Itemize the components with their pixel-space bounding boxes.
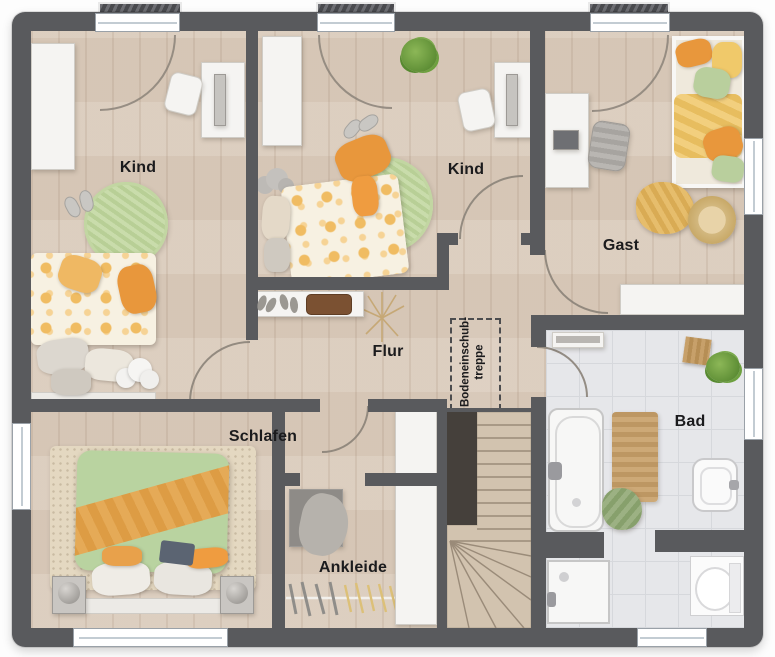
ankleide-closet-column: [395, 410, 437, 625]
bad-sink: [692, 458, 738, 512]
schlafen-bed: [74, 450, 232, 620]
wall-schlafen-north-west: [31, 399, 320, 412]
bad-shower: [547, 560, 610, 624]
bad-bathtub: [548, 408, 604, 532]
clothes-rail: [286, 582, 400, 616]
kind1-cloud-table: [116, 356, 160, 396]
door-arc-kind2: [460, 176, 523, 239]
room-label-gast: Gast: [603, 237, 639, 255]
window-swing-kind1: [100, 35, 175, 110]
wall-toilet-stub: [655, 530, 744, 552]
window-kind1: [95, 13, 180, 32]
wall-ankleide-north-east: [365, 473, 437, 486]
wall-gast-bad: [531, 315, 744, 330]
window-bad-bottom: [637, 628, 707, 647]
flur-tray-basket: [306, 294, 352, 315]
kind2-plant: [401, 38, 437, 72]
schlafen-throw-orange: [74, 459, 229, 559]
door-arc-bad: [537, 347, 587, 397]
window-schlafen-left: [12, 423, 31, 510]
room-label-flur: Flur: [372, 343, 403, 361]
window-schlafen-bottom: [73, 628, 228, 647]
gast-bed: [672, 36, 746, 188]
bad-tub-drain: [572, 498, 581, 507]
gast-sideboard: [620, 284, 746, 315]
window-kind2: [317, 13, 395, 32]
bad-shower-drain: [559, 572, 569, 582]
wall-bad-west-stub: [531, 330, 546, 347]
kind2-bed: [258, 132, 406, 282]
attic-hatch-label: Bodeneinschub- treppe: [459, 317, 488, 407]
schlafen-cushion-orange-left: [102, 546, 142, 566]
kind1-pillow-small: [51, 369, 91, 395]
room-label-schlafen: Schlafen: [229, 428, 297, 446]
window-bad-right: [744, 368, 763, 440]
window-swing-gast: [592, 35, 668, 111]
wall-kind2-south: [246, 277, 447, 290]
kind2-pillow-beige: [260, 195, 291, 241]
kind2-duvet: [280, 173, 409, 287]
staircase: [447, 412, 531, 628]
room-label-bad: Bad: [675, 413, 706, 431]
window-gast-top: [590, 13, 670, 32]
wall-kind2-doorstub-west: [437, 233, 458, 245]
attic-label-line2: treppe: [474, 344, 486, 379]
bad-plant: [706, 352, 740, 382]
bad-sink-tap: [729, 480, 739, 490]
bad-toilet-base: [690, 556, 744, 616]
bad-toilet-cistern: [729, 563, 741, 613]
kind2-pillow-grey: [264, 238, 290, 272]
schlafen-lamp-right: [226, 582, 248, 604]
door-arc-kind1: [190, 342, 250, 402]
kind1-wardrobe: [31, 43, 75, 170]
kind2-headboard-cushion: [350, 175, 380, 217]
kind2-wardrobe: [262, 36, 302, 146]
bad-sink-basin: [700, 467, 732, 505]
window-swing-kind2: [319, 35, 392, 108]
schlafen-footboard: [78, 598, 228, 614]
dried-grass-plant: [360, 292, 404, 342]
floor-plan: Bodeneinschub- treppe: [0, 0, 775, 657]
gast-throw-blanket: [636, 182, 694, 234]
bad-shower-faucet: [547, 592, 556, 607]
wall-kind1-kind2: [246, 31, 258, 340]
bad-towel: [556, 336, 600, 343]
wall-bad-west: [531, 397, 546, 628]
room-label-kind2: Kind: [448, 161, 484, 179]
stair-opening-edge: [447, 408, 531, 412]
wall-stair-west: [437, 399, 447, 628]
door-arc-gast: [545, 250, 608, 313]
wall-tub-shower-stub: [546, 532, 604, 558]
schlafen-lamp-left: [58, 582, 80, 604]
kind1-monitor: [214, 74, 226, 126]
schlafen-book: [159, 540, 195, 566]
gast-pouf: [586, 119, 631, 172]
gast-basket: [688, 196, 736, 244]
wall-kind2-gast: [530, 31, 545, 255]
wall-step: [437, 245, 449, 290]
window-gast-right: [744, 138, 763, 215]
gast-pillow-green-bottom: [710, 154, 745, 184]
room-label-kind1: Kind: [120, 159, 156, 177]
bad-tub-faucet: [548, 462, 562, 480]
wall-schlafen-north-east: [368, 399, 447, 412]
wall-ankleide-north-west: [272, 473, 300, 486]
attic-label-line1: Bodeneinschub-: [460, 317, 472, 407]
gast-laptop: [553, 130, 579, 150]
room-label-ankleide: Ankleide: [319, 559, 387, 577]
kind2-monitor: [506, 74, 518, 126]
door-arc-schlafen: [322, 406, 368, 452]
bad-green-towel: [602, 488, 642, 530]
